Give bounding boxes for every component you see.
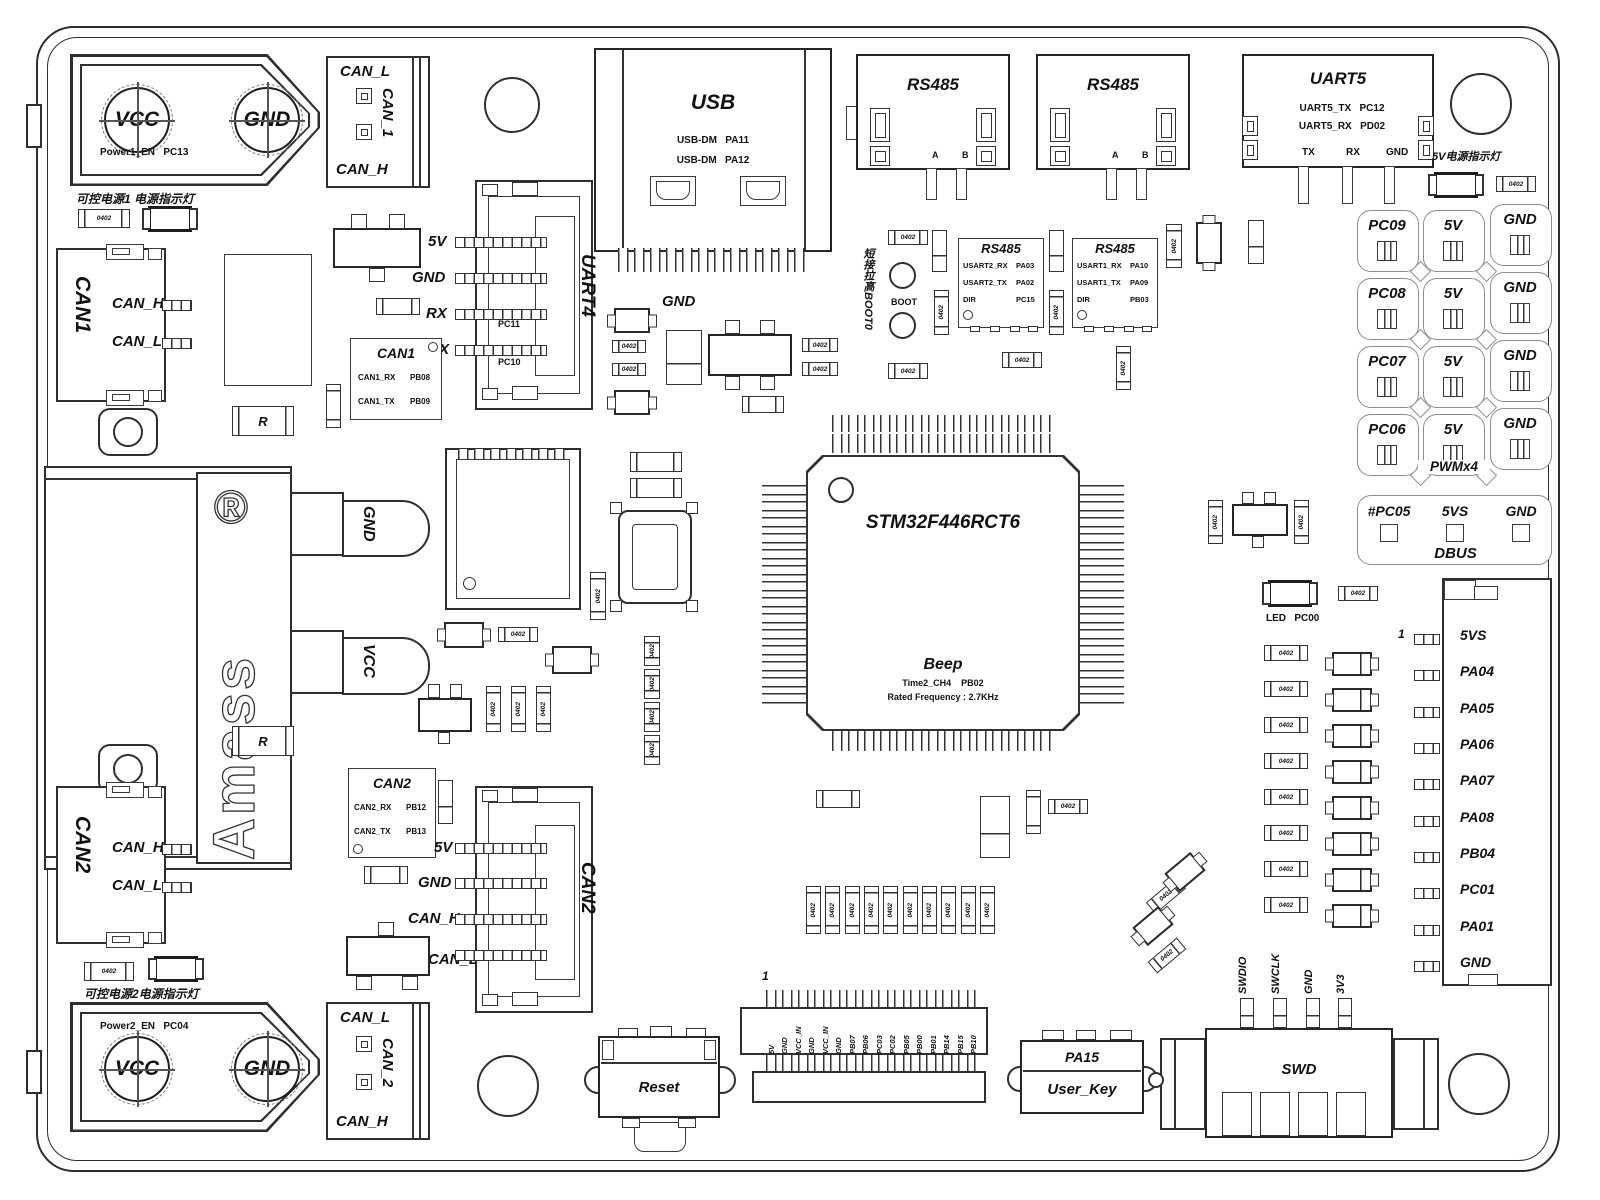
sot23-5-regulator bbox=[708, 334, 792, 376]
socket-pad bbox=[106, 782, 144, 798]
pin-label: PB15 bbox=[957, 1010, 965, 1054]
pin-label: PC03 bbox=[876, 1010, 884, 1054]
power1-gnd-terminal: GND bbox=[234, 87, 300, 153]
termination-resistor: R bbox=[232, 726, 294, 756]
chip-row: PC15 bbox=[1016, 296, 1035, 304]
resistor-array bbox=[742, 396, 784, 413]
gnd-label: GND bbox=[1304, 942, 1315, 994]
usb-row2: USB-DM PA12 bbox=[622, 156, 804, 166]
swd-ear bbox=[1160, 1038, 1206, 1130]
resistor bbox=[326, 384, 341, 428]
screw-pad bbox=[356, 88, 372, 104]
pad-cell-gnd: GND bbox=[1490, 204, 1552, 266]
corner-pad bbox=[1050, 146, 1070, 166]
resistor-array bbox=[816, 790, 860, 808]
pin1-marker: 1 bbox=[1398, 628, 1405, 640]
resistor-0402: 0402 bbox=[1116, 346, 1131, 390]
resistor-0402: 0402 bbox=[1264, 897, 1308, 913]
pad-cell-5v: 5V bbox=[1423, 346, 1485, 408]
indicator-led bbox=[1332, 868, 1372, 892]
power2-led-caption: 可控电源2电源指示灯 bbox=[84, 988, 199, 1000]
resistor bbox=[376, 298, 420, 315]
can-l-pin bbox=[162, 338, 192, 349]
resistor-0402: 0402 bbox=[922, 886, 937, 934]
pin1-dot bbox=[1077, 310, 1087, 320]
sot23-transistor bbox=[1232, 504, 1288, 536]
pin-a-label: A bbox=[1112, 151, 1119, 160]
uart4-5v-label: 5V bbox=[428, 234, 446, 249]
can-h-label: CAN_H bbox=[336, 162, 388, 177]
rs485-connector-2: RS485 A B bbox=[1036, 54, 1190, 170]
resistor-0402: 0402 bbox=[511, 686, 526, 732]
chip-row: DIR bbox=[1077, 296, 1090, 304]
gnd-label: GND bbox=[1491, 504, 1551, 518]
mounting-hole bbox=[484, 77, 540, 133]
corner-pad bbox=[1242, 116, 1258, 136]
board-edge-tab bbox=[26, 1050, 42, 1094]
pin1-dot bbox=[353, 844, 363, 854]
can2-canh-label: CAN_H bbox=[408, 911, 460, 926]
screw-pad bbox=[356, 1074, 372, 1090]
boot-pad bbox=[889, 262, 916, 289]
pwmx4-caption: PWMx4 bbox=[1418, 460, 1490, 474]
corner-pad bbox=[1050, 108, 1070, 142]
pin-label: GND bbox=[808, 1010, 816, 1054]
pin-label: 5V bbox=[768, 1010, 776, 1054]
5vs-label: 5VS bbox=[1424, 504, 1486, 518]
indicator-led bbox=[1332, 796, 1372, 820]
power1-led bbox=[148, 206, 192, 232]
gnd-label: GND bbox=[360, 506, 376, 552]
chip-row: USART2_RX bbox=[963, 262, 1008, 270]
pin bbox=[455, 878, 547, 889]
resistor-0402: 0402 bbox=[883, 886, 898, 934]
usb-pin-row bbox=[618, 248, 808, 272]
chip-title: RS485 bbox=[1072, 242, 1158, 255]
can2-jst-connector: 5V GND CAN_H CAN_L CAN2 bbox=[410, 780, 610, 1015]
rx-label: RX bbox=[1346, 148, 1360, 158]
resistor-0402: 0402 bbox=[864, 886, 879, 934]
pin1-dot bbox=[463, 577, 476, 590]
capacitor bbox=[932, 230, 947, 272]
mcu-pins-bottom bbox=[832, 731, 1054, 751]
uart4-rx-label: RX bbox=[426, 306, 447, 321]
uart4-rx-pin: PC11 bbox=[498, 320, 520, 329]
resistor-array bbox=[630, 478, 682, 498]
pin-leg bbox=[1298, 166, 1309, 204]
pin-leg bbox=[1384, 166, 1395, 204]
pin bbox=[455, 237, 547, 248]
reset-button[interactable]: Reset bbox=[598, 1026, 723, 1118]
swd-side-hole bbox=[1148, 1072, 1164, 1088]
chip-row: CAN1_RX bbox=[358, 374, 395, 382]
chip-row: CAN2_RX bbox=[354, 804, 391, 812]
uart5-row2: UART5_RX PD02 bbox=[1272, 122, 1412, 132]
pin-label: PB05 bbox=[903, 1010, 911, 1054]
chip-title: RS485 bbox=[958, 242, 1044, 255]
pad-cell-pc07: PC07 bbox=[1357, 346, 1419, 408]
pin-label: 5VS bbox=[1460, 628, 1486, 642]
resistor-0402: 0402 bbox=[941, 886, 956, 934]
corner-pad bbox=[870, 108, 890, 142]
pad-cell-gnd: GND bbox=[1490, 408, 1552, 470]
pin-label: PB00 bbox=[916, 1010, 924, 1054]
led-pc00-label: LED PC00 bbox=[1266, 614, 1319, 624]
pin-label: GND bbox=[835, 1010, 843, 1054]
chip-row: PA02 bbox=[1016, 279, 1034, 287]
pin-leg bbox=[1106, 168, 1117, 200]
dbus-caption: DBUS bbox=[1358, 546, 1553, 561]
pin-leg bbox=[956, 168, 967, 200]
pin-stub bbox=[1273, 998, 1287, 1028]
pin-label: GND bbox=[781, 1010, 789, 1054]
resistor-0402: 0402 bbox=[888, 230, 928, 245]
mcu-pins-top bbox=[832, 415, 1054, 432]
pin-leg bbox=[926, 168, 937, 200]
rs485-chip-usart1: RS485 USART1_RX PA10 USART1_TX PA09 DIR … bbox=[1072, 238, 1158, 328]
can-l-label: CAN_L bbox=[112, 878, 162, 893]
vcc-pin-base bbox=[290, 630, 344, 694]
resistor-0402: 0402 bbox=[1496, 176, 1536, 192]
can2-gnd-label: GND bbox=[418, 875, 451, 890]
chip-row: CAN1_TX bbox=[358, 398, 394, 406]
can1-terminal-block: CAN_L CAN_1 CAN_H bbox=[326, 56, 430, 188]
socket-pad bbox=[148, 786, 162, 798]
swdio-label: SWDIO bbox=[1238, 942, 1249, 994]
capacitor bbox=[980, 796, 1010, 858]
corner-pad bbox=[870, 146, 890, 166]
resistor-0402: 0402 bbox=[536, 686, 551, 732]
pin-label: VCC_IN bbox=[795, 1010, 803, 1054]
chip-row: PB03 bbox=[1130, 296, 1149, 304]
pin-label: PA06 bbox=[1460, 737, 1494, 751]
pad-cell-5v: 5V bbox=[1423, 210, 1485, 272]
pin bbox=[455, 273, 547, 284]
pin-label: PB14 bbox=[943, 1010, 951, 1054]
dbus-pad-cell: #PC05 5VS GND DBUS bbox=[1357, 495, 1552, 565]
indicator-led bbox=[1332, 760, 1372, 784]
diode bbox=[614, 308, 650, 333]
pad-cell-gnd: GND bbox=[1490, 340, 1552, 402]
ic-pins bbox=[458, 449, 568, 459]
uart5-title: UART5 bbox=[1242, 70, 1434, 87]
indicator-led bbox=[1332, 832, 1372, 856]
pin bbox=[455, 345, 547, 356]
can-h-label: CAN_H bbox=[112, 296, 164, 311]
socket-pad bbox=[148, 248, 162, 260]
dbus-right-connector: 1 5VS PA04 PA05 PA06 PA07 PA08 PB04 PC01… bbox=[1408, 562, 1558, 994]
resistor-0402: 0402 bbox=[1264, 717, 1308, 733]
mcu-pins-left bbox=[762, 485, 806, 705]
gnd-pin-base bbox=[290, 492, 344, 556]
socket-pad bbox=[148, 932, 162, 944]
indicator-led bbox=[1332, 724, 1372, 748]
usb-row1: USB-DM PA11 bbox=[622, 136, 804, 146]
pad-cell-gnd: GND bbox=[1490, 272, 1552, 334]
power2-gnd-terminal: GND bbox=[234, 1036, 300, 1102]
resistor-0402: 0402 bbox=[1264, 681, 1308, 697]
resistor-0402: 0402 bbox=[1294, 500, 1309, 544]
pin-label: PA08 bbox=[1460, 810, 1494, 824]
resistor-0402: 0402 bbox=[1002, 352, 1042, 368]
usb-connector: USB USB-DM PA11 USB-DM PA12 bbox=[594, 48, 832, 252]
led-5v bbox=[1434, 172, 1478, 198]
chip-row: CAN2_TX bbox=[354, 828, 390, 836]
socket-pad bbox=[148, 390, 162, 402]
swd-ear bbox=[1393, 1038, 1439, 1130]
can-h-pin bbox=[162, 844, 192, 855]
mcu-part-number: STM32F446RCT6 bbox=[806, 513, 1080, 532]
power2-vcc-terminal: VCC bbox=[104, 1036, 170, 1102]
uart4-gnd-label: GND bbox=[412, 270, 445, 285]
pin1-dot bbox=[428, 342, 438, 352]
sot23-transistor bbox=[346, 936, 430, 976]
pin-b-label: B bbox=[962, 151, 969, 160]
resistor-0402: 0402 bbox=[980, 886, 995, 934]
pin-leg bbox=[1136, 168, 1147, 200]
corner-pad bbox=[976, 108, 996, 142]
resistor-0402: 0402 bbox=[612, 363, 646, 376]
resistor-0402: 0402 bbox=[806, 886, 821, 934]
can2-socket-label: CAN2 bbox=[72, 816, 93, 912]
resistor-0402: 0402 bbox=[644, 636, 660, 666]
resistor-0402: 0402 bbox=[84, 962, 134, 981]
corner-pad bbox=[976, 146, 996, 166]
can-l-pin bbox=[162, 882, 192, 893]
corner-pad bbox=[1156, 108, 1176, 142]
header-pins-top bbox=[766, 990, 980, 1007]
boot-label: BOOT bbox=[891, 298, 917, 307]
header-plate bbox=[752, 1071, 986, 1103]
rs485-title: RS485 bbox=[856, 76, 1010, 93]
socket-pad bbox=[106, 932, 144, 948]
pin bbox=[455, 914, 547, 925]
pad-cell-pc08: PC08 bbox=[1357, 278, 1419, 340]
resistor-0402: 0402 bbox=[1049, 290, 1064, 335]
vcc-bullet-pin bbox=[342, 637, 430, 695]
resistor-0402: 0402 bbox=[1338, 586, 1378, 601]
mounting-hole bbox=[1448, 1053, 1510, 1115]
registered-mark-icon: ® bbox=[214, 484, 248, 530]
socket-pad bbox=[106, 244, 144, 260]
mount-hole-small bbox=[113, 754, 143, 784]
can1-socket: CAN1 CAN_H CAN_L bbox=[56, 248, 166, 402]
pin-label: PA07 bbox=[1460, 773, 1494, 787]
diode bbox=[1196, 222, 1222, 264]
resistor-0402: 0402 bbox=[888, 363, 928, 379]
vcc-label: VCC bbox=[360, 644, 376, 690]
pin-label: PB06 bbox=[862, 1010, 870, 1054]
pin-label: PB07 bbox=[849, 1010, 857, 1054]
pad-cell-pc09: PC09 bbox=[1357, 210, 1419, 272]
diode bbox=[444, 622, 484, 648]
pin-label: GND bbox=[1460, 955, 1491, 969]
pin-label: PC01 bbox=[1460, 882, 1495, 896]
resistor-0402: 0402 bbox=[961, 886, 976, 934]
chip-row: PA09 bbox=[1130, 279, 1148, 287]
chip-row: PB09 bbox=[410, 398, 430, 406]
pcb-diagram: VCC GND Power1_EN PC13 CAN_L CAN_1 CAN_H… bbox=[0, 0, 1600, 1200]
capacitor bbox=[666, 330, 702, 385]
mcu-pins-right bbox=[1080, 485, 1124, 705]
pin-b-label: B bbox=[1142, 151, 1149, 160]
pin-label: PB10 bbox=[970, 1010, 978, 1054]
indicator-led bbox=[1332, 652, 1372, 676]
resistor-0402: 0402 bbox=[590, 572, 606, 620]
mount-hole-small bbox=[113, 417, 143, 447]
pin-stub bbox=[1338, 998, 1352, 1028]
resistor-0402: 0402 bbox=[1264, 645, 1308, 661]
tx-label: TX bbox=[1302, 148, 1315, 158]
user-key-pin: PA15 bbox=[1020, 1050, 1144, 1064]
power2-enable-label: Power2_EN PC04 bbox=[100, 1022, 188, 1032]
chip-row: PA10 bbox=[1130, 262, 1148, 270]
gnd-label: GND bbox=[662, 294, 695, 309]
resistor-0402: 0402 bbox=[1208, 500, 1223, 544]
resistor-0402: 0402 bbox=[1166, 224, 1182, 268]
resistor-0402: 0402 bbox=[486, 686, 501, 732]
indicator-led bbox=[1332, 904, 1372, 928]
user-key-button[interactable]: PA15 User_Key bbox=[1020, 1030, 1146, 1118]
swd-connector: SWDIO SWCLK GND 3V3 SWD bbox=[1160, 940, 1450, 1145]
power1-vcc-terminal: VCC bbox=[104, 87, 170, 153]
can1-transceiver-chip: CAN1 CAN1_RX PB08 CAN1_TX PB09 bbox=[350, 338, 442, 420]
socket-pad bbox=[106, 390, 144, 406]
pin-a-label: A bbox=[932, 151, 939, 160]
can-l-label: CAN_L bbox=[340, 64, 390, 79]
diode bbox=[552, 646, 592, 674]
resistor-0402: 0402 bbox=[644, 702, 660, 732]
reset-label: Reset bbox=[598, 1080, 720, 1095]
rs485-connector-1: RS485 A B bbox=[856, 54, 1010, 170]
screw-pad bbox=[356, 124, 372, 140]
power1-enable-label: Power1_EN PC13 bbox=[100, 148, 188, 158]
user-key-label: User_Key bbox=[1020, 1082, 1144, 1097]
can2-socket: CAN2 CAN_H CAN_L bbox=[56, 786, 166, 944]
pin-leg bbox=[1342, 166, 1353, 204]
boot-note: 短接拉高BOOT0 bbox=[862, 248, 873, 352]
pwm-pad-grid: PC09 5V GND PC08 5V GND PC07 5V GND PC06… bbox=[1322, 202, 1554, 574]
resistor-0402: 0402 bbox=[903, 886, 918, 934]
resistor bbox=[364, 866, 408, 884]
chip-row: USART2_TX bbox=[963, 279, 1007, 287]
resistor-array bbox=[630, 452, 682, 472]
amass-brand: Amass bbox=[206, 544, 264, 860]
power2-led bbox=[154, 956, 198, 982]
usb-pad bbox=[650, 176, 696, 206]
corner-pad bbox=[1242, 140, 1258, 160]
pin1-marker: 1 bbox=[762, 970, 769, 982]
pin-stub bbox=[1306, 998, 1320, 1028]
pad-cell-pc06: PC06 bbox=[1357, 414, 1419, 476]
pin1-dot bbox=[828, 477, 854, 503]
resistor-0402: 0402 bbox=[498, 627, 538, 642]
can2-port-label: CAN_2 bbox=[380, 1038, 395, 1104]
pin-label: PA04 bbox=[1460, 664, 1494, 678]
resistor-0402: 0402 bbox=[1264, 789, 1308, 805]
can-l-label: CAN_L bbox=[340, 1010, 390, 1025]
uart5-connector: UART5 UART5_TX PC12 UART5_RX PD02 TX RX … bbox=[1242, 54, 1434, 168]
can-h-label: CAN_H bbox=[336, 1114, 388, 1129]
bottom-io-header: 1 5V GND VCC_IN GND VCC_IN GND PB07 PB06… bbox=[736, 954, 992, 1106]
resistor-0402: 0402 bbox=[934, 290, 949, 335]
ic-body bbox=[224, 254, 312, 386]
pin-label: PB04 bbox=[1460, 846, 1495, 860]
capacitor bbox=[1248, 220, 1264, 264]
capacitor bbox=[1049, 230, 1064, 272]
rs485-chip-usart2: RS485 USART2_RX PA03 USART2_TX PA02 DIR … bbox=[958, 238, 1044, 328]
chip-row: DIR bbox=[963, 296, 976, 304]
board-edge-tab bbox=[26, 104, 42, 148]
resistor-0402: 0402 bbox=[802, 362, 838, 376]
sot23-transistor bbox=[418, 698, 472, 732]
beep-channel: Time2_CH4 PB02 bbox=[806, 679, 1080, 688]
mounting-hole bbox=[1450, 73, 1512, 135]
can2-terminal-block: CAN_L CAN_2 CAN_H bbox=[326, 1002, 430, 1140]
pin-label: PA05 bbox=[1460, 701, 1494, 715]
can-h-label: CAN_H bbox=[112, 840, 164, 855]
pin-stub bbox=[1240, 998, 1254, 1028]
resistor bbox=[1026, 790, 1041, 834]
rs485-title: RS485 bbox=[1036, 76, 1190, 93]
pin1-dot bbox=[963, 310, 973, 320]
resistor-0402: 0402 bbox=[845, 886, 860, 934]
usb-pad bbox=[740, 176, 786, 206]
can-l-label: CAN_L bbox=[112, 334, 162, 349]
pin bbox=[455, 843, 547, 854]
screw-pad bbox=[356, 1036, 372, 1052]
resistor-0402: 0402 bbox=[1264, 861, 1308, 877]
indicator-led bbox=[1332, 688, 1372, 712]
termination-resistor: R bbox=[232, 406, 294, 436]
chip-row: PA03 bbox=[1016, 262, 1034, 270]
resistor-0402: 0402 bbox=[825, 886, 840, 934]
swd-label: SWD bbox=[1205, 1062, 1393, 1077]
boot-pad bbox=[889, 312, 916, 339]
pin-label: PA01 bbox=[1460, 919, 1494, 933]
gnd-label: GND bbox=[1386, 148, 1408, 158]
beep-frequency: Rated Frequency : 2.7KHz bbox=[806, 693, 1080, 702]
pad-cell-5v: 5V bbox=[1423, 278, 1485, 340]
pc05-label: #PC05 bbox=[1358, 504, 1420, 518]
beep-label: Beep bbox=[806, 657, 1080, 673]
resistor-0402: 0402 bbox=[802, 338, 838, 352]
corner-pad bbox=[1418, 116, 1434, 136]
pin-label: VCC_IN bbox=[822, 1010, 830, 1054]
resistor-0402: 0402 bbox=[644, 735, 660, 765]
can-h-pin bbox=[162, 300, 192, 311]
mounting-hole bbox=[477, 1055, 539, 1117]
3v3-label: 3V3 bbox=[1336, 942, 1347, 994]
crystal-inner bbox=[632, 524, 678, 590]
chip-row: PB08 bbox=[410, 374, 430, 382]
led5v-caption: 5V电源指示灯 bbox=[1432, 152, 1500, 163]
can1-port-label: CAN_1 bbox=[380, 88, 395, 156]
uart4-title: UART4 bbox=[578, 254, 597, 346]
uart5-row1: UART5_TX PC12 bbox=[1272, 104, 1412, 114]
resistor-0402: 0402 bbox=[644, 669, 660, 699]
header-pins-bottom bbox=[766, 1055, 980, 1071]
corner-pad bbox=[1156, 146, 1176, 166]
pin bbox=[455, 950, 547, 961]
chip-row: USART1_TX bbox=[1077, 279, 1121, 287]
diode bbox=[614, 390, 650, 415]
uart4-tx-pin: PC10 bbox=[498, 358, 521, 367]
swclk-label: SWCLK bbox=[1271, 942, 1282, 994]
pin-label: PB01 bbox=[930, 1010, 938, 1054]
chip-row: USART1_RX bbox=[1077, 262, 1122, 270]
gnd-label: GND bbox=[244, 108, 291, 132]
